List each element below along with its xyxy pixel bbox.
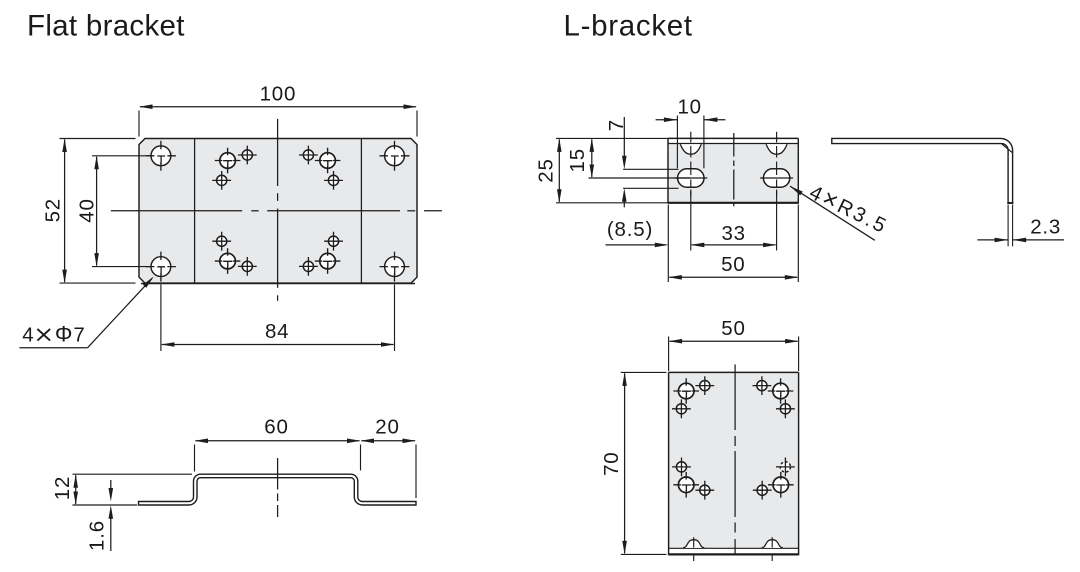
- svg-text:4: 4: [22, 324, 33, 347]
- svg-text:100: 100: [260, 83, 297, 106]
- svg-text:12: 12: [51, 476, 74, 500]
- svg-text:52: 52: [42, 198, 65, 222]
- svg-text:33: 33: [721, 222, 745, 245]
- svg-text:84: 84: [265, 320, 289, 343]
- svg-text:50: 50: [721, 317, 745, 340]
- svg-text:Flat bracket: Flat bracket: [27, 10, 185, 43]
- svg-text:2.3: 2.3: [1030, 216, 1061, 239]
- svg-text:50: 50: [721, 253, 745, 276]
- svg-text:40: 40: [75, 198, 98, 222]
- svg-text:60: 60: [264, 416, 288, 439]
- svg-text:20: 20: [375, 416, 399, 439]
- svg-text:15: 15: [566, 148, 589, 172]
- svg-text:Φ: Φ: [55, 322, 73, 347]
- svg-text:7: 7: [73, 324, 84, 347]
- svg-text:7: 7: [605, 119, 628, 131]
- svg-text:(8.5): (8.5): [607, 218, 653, 241]
- svg-text:25: 25: [535, 158, 558, 182]
- svg-text:1.6: 1.6: [86, 520, 109, 551]
- svg-text:10: 10: [677, 95, 701, 118]
- svg-text:L-bracket: L-bracket: [564, 10, 693, 43]
- svg-text:70: 70: [600, 451, 623, 475]
